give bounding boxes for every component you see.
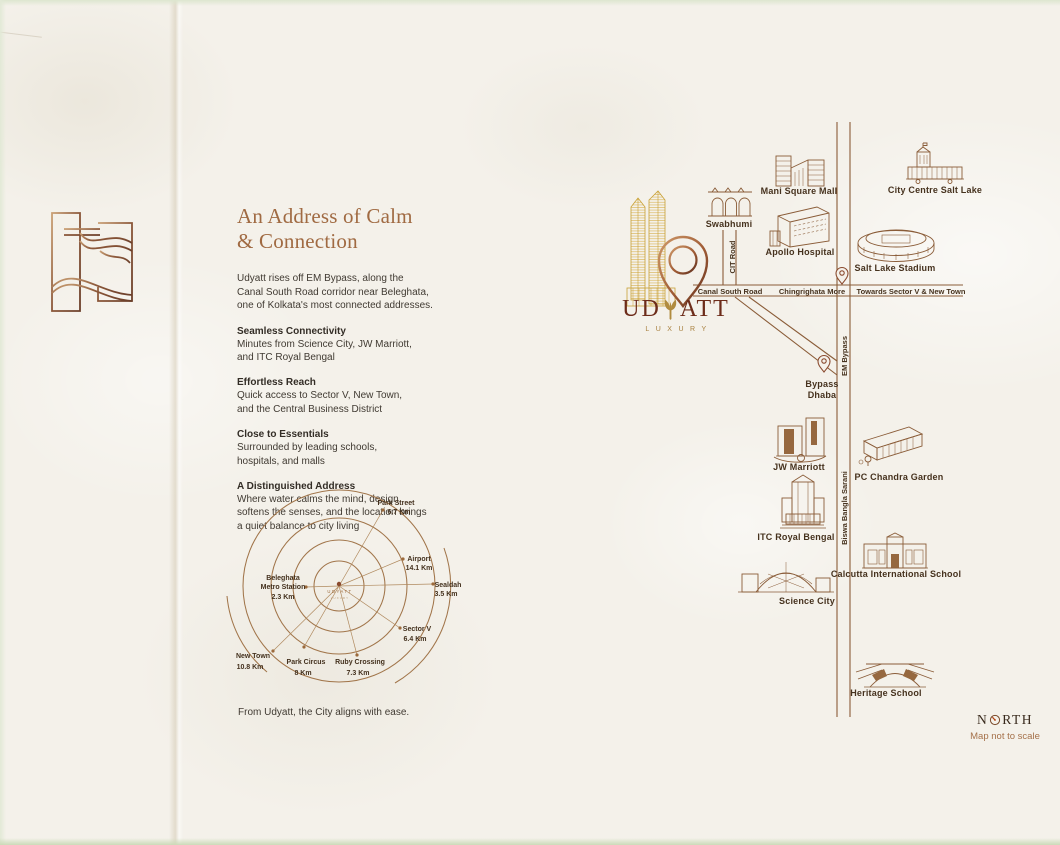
brand-word-start: UD [622, 297, 661, 321]
mani-square-mall-icon [776, 156, 824, 186]
label-towards-sector: Towards Sector V & New Town [857, 287, 966, 296]
brand-word-end: ATT [680, 297, 730, 321]
title-line-1: An Address of Calm [237, 204, 413, 228]
label-calcutta-international-school: Calcutta International School [831, 569, 961, 579]
svg-text:Sector V: Sector V [403, 626, 432, 633]
svg-text:6.7 Km: 6.7 Km [388, 509, 411, 516]
svg-text:Beleghata: Beleghata [266, 575, 300, 582]
location-map: Swabhumi Mani Square Mall Apollo Hospita… [618, 110, 1060, 755]
svg-text:10.8 Km: 10.8 Km [237, 664, 264, 671]
svg-text:3.5 Km: 3.5 Km [435, 591, 458, 598]
radial-center-label: UDYATT LUXURY [327, 589, 352, 600]
svg-text:8 Km: 8 Km [294, 670, 311, 677]
section-reach: Effortless Reach Quick access to Sector … [237, 377, 477, 416]
page-edge-top [0, 0, 1060, 6]
svg-text:14.1 Km: 14.1 Km [406, 565, 433, 572]
radial-dots [271, 508, 434, 656]
svg-text:Park Circus: Park Circus [287, 659, 326, 666]
label-city-centre: City Centre Salt Lake [888, 185, 982, 195]
leaf-y-glyph-icon [662, 298, 679, 321]
page-edge-bottom [0, 838, 1060, 845]
pc-chandra-garden-icon [859, 427, 922, 466]
label-swabhumi: Swabhumi [706, 219, 753, 229]
paper-fold-line [0, 31, 42, 38]
section-connectivity: Seamless Connectivity Minutes from Scien… [237, 326, 477, 365]
section-essentials: Close to Essentials Surrounded by leadin… [237, 429, 477, 468]
jw-marriott-icon [774, 418, 826, 462]
apollo-hospital-icon [770, 207, 829, 247]
brand-tagline: LUXURY [618, 326, 734, 333]
radial-spokes [273, 510, 433, 655]
label-salt-lake-stadium: Salt Lake Stadium [855, 263, 936, 273]
svg-text:Metro Station: Metro Station [261, 584, 306, 591]
poi-labels: Swabhumi Mani Square Mall Apollo Hospita… [706, 185, 982, 698]
chingrighata-pin-icon [836, 268, 848, 285]
svg-text:6.4 Km: 6.4 Km [404, 636, 427, 643]
label-pc-chandra-garden: PC Chandra Garden [855, 472, 944, 482]
brand-word: UD ATT [618, 297, 734, 321]
label-bypass-dhaba-2: Dhaba [808, 390, 837, 400]
label-bypass-dhaba-1: Bypass [805, 379, 838, 389]
svg-text:Ruby Crossing: Ruby Crossing [335, 659, 385, 666]
title-line-2: & Connection [237, 229, 358, 253]
svg-text:Airport: Airport [407, 556, 431, 563]
page-edge-left [0, 0, 6, 845]
label-canal-south-road: Canal South Road [698, 287, 763, 296]
label-heritage-school: Heritage School [850, 688, 922, 698]
svg-text:Park Street: Park Street [378, 500, 416, 507]
salt-lake-stadium-icon [858, 230, 934, 261]
label-itc-royal-bengal: ITC Royal Bengal [757, 532, 834, 542]
lead-paragraph: Udyatt rises off EM Bypass, along the Ca… [237, 272, 477, 312]
label-chingrighata-more: Chingrighata More [779, 287, 845, 296]
heritage-school-icon [856, 664, 934, 687]
svg-text:LUXURY: LUXURY [331, 596, 350, 600]
svg-text:2.3 Km: 2.3 Km [272, 594, 295, 601]
label-apollo-hospital: Apollo Hospital [766, 247, 835, 257]
svg-text:New Town: New Town [236, 653, 270, 660]
itc-royal-bengal-icon [780, 475, 826, 528]
bypass-dhaba-pin-icon [818, 356, 830, 373]
label-mani-square-mall: Mani Square Mall [761, 186, 838, 196]
north-label: N RTH [977, 713, 1033, 727]
intro-copy: An Address of Calm & Connection Udyatt r… [237, 204, 477, 533]
compass-block: N RTH Map not to scale [950, 711, 1060, 742]
udyatt-twin-towers-icon [627, 191, 675, 306]
science-city-icon [738, 562, 834, 592]
svg-text:7.3 Km: 7.3 Km [347, 670, 370, 677]
label-jw-marriott: JW Marriott [773, 462, 825, 472]
svg-text:Sealdah: Sealdah [435, 582, 462, 589]
city-centre-salt-lake-icon [906, 143, 964, 184]
page-title: An Address of Calm & Connection [237, 204, 477, 254]
brochure-page: { "page": { "background": "#f4f1ea", "ac… [0, 0, 1060, 845]
label-science-city: Science City [779, 596, 835, 606]
scale-note: Map not to scale [950, 731, 1060, 742]
map-roads [693, 122, 963, 717]
calcutta-international-school-icon [862, 533, 928, 568]
brand-logotype: UD ATT LUXURY [618, 297, 734, 333]
radial-diagram-svg: Park Street 6.7 Km Airport 14.1 Km Seald… [222, 488, 474, 704]
emblem-logo [44, 203, 136, 326]
label-biswa-bangla-sarani: Biswa Bangla Sarani [840, 471, 849, 545]
udyatt-abstract-monogram-icon [44, 203, 136, 321]
compass-rose-icon [989, 714, 1001, 726]
swabhumi-icon [708, 188, 752, 216]
paper-crease [169, 0, 183, 845]
location-map-svg: Swabhumi Mani Square Mall Apollo Hospita… [618, 110, 1060, 750]
label-cit-road: CIT Road [728, 240, 737, 273]
svg-text:UDYATT: UDYATT [327, 589, 352, 594]
label-em-bypass: EM Bypass [840, 336, 849, 376]
distance-radial-diagram: Park Street 6.7 Km Airport 14.1 Km Seald… [222, 488, 474, 709]
